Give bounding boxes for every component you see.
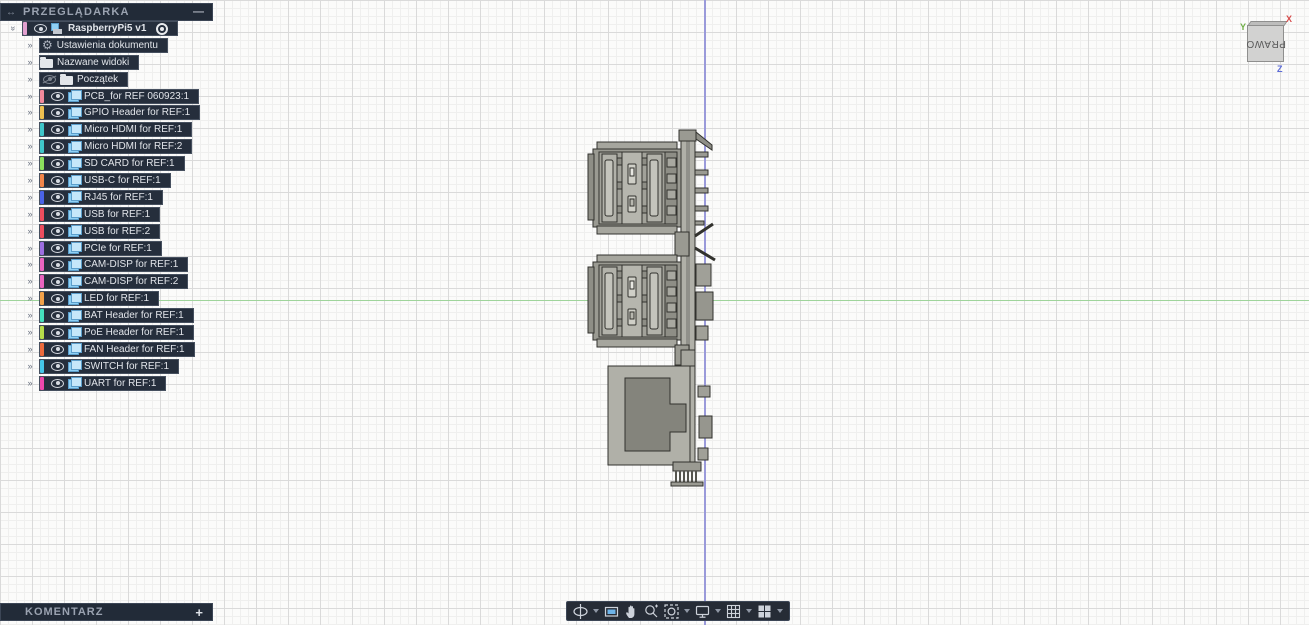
axis-z-label: Z xyxy=(1277,64,1283,74)
body-cube-icon xyxy=(68,310,80,322)
color-strip xyxy=(40,275,44,288)
browser-item-component[interactable]: » USB for REF:2 xyxy=(0,224,240,239)
browser-item-component[interactable]: » CAM-DISP for REF:1 xyxy=(0,257,240,272)
body-cube-icon xyxy=(68,327,80,339)
color-strip xyxy=(40,377,44,390)
browser-item-component[interactable]: » PCIe for REF:1 xyxy=(0,241,240,256)
expand-chevron-icon[interactable]: » xyxy=(25,291,35,306)
browser-item-document-settings[interactable]: » ⚙ Ustawienia dokumentu xyxy=(0,38,240,53)
fit-button[interactable] xyxy=(662,602,681,620)
expand-chevron-icon[interactable]: » xyxy=(6,24,21,34)
color-strip xyxy=(40,242,44,255)
visibility-eye-icon[interactable] xyxy=(51,227,64,236)
browser-item-origin[interactable]: » Początek xyxy=(0,72,240,87)
expand-chevron-icon[interactable]: » xyxy=(25,342,35,357)
visibility-eye-icon[interactable] xyxy=(51,125,64,134)
visibility-eye-icon[interactable] xyxy=(51,108,64,117)
visibility-eye-off-icon[interactable] xyxy=(43,75,56,84)
color-strip xyxy=(40,343,44,356)
browser-item-component[interactable]: » USB-C for REF:1 xyxy=(0,173,240,188)
body-cube-icon xyxy=(68,343,80,355)
body-cube-icon xyxy=(68,259,80,271)
browser-item-component[interactable]: » LED for REF:1 xyxy=(0,291,240,306)
browser-item-component[interactable]: » SWITCH for REF:1 xyxy=(0,359,240,374)
browser-item-component[interactable]: » Micro HDMI for REF:2 xyxy=(0,139,240,154)
root-label: RaspberryPi5 v1 xyxy=(68,23,146,34)
expand-chevron-icon[interactable]: » xyxy=(25,122,35,137)
pan-button[interactable] xyxy=(622,602,641,620)
body-cube-icon xyxy=(68,158,80,170)
browser-panel-title: PRZEGLĄDARKA xyxy=(23,6,130,18)
color-strip xyxy=(40,123,44,136)
color-strip xyxy=(40,225,44,238)
axis-y-label: Y xyxy=(1240,22,1246,32)
assembly-icon xyxy=(51,23,64,35)
visibility-eye-icon[interactable] xyxy=(51,176,64,185)
dock-panel-icon[interactable]: ↔ xyxy=(6,7,16,18)
expand-chevron-icon[interactable]: » xyxy=(25,274,35,289)
expand-chevron-icon[interactable]: » xyxy=(25,224,35,239)
color-strip xyxy=(40,90,44,103)
body-cube-icon xyxy=(68,377,80,389)
orbit-dropdown-caret[interactable] xyxy=(593,609,599,613)
visibility-eye-icon[interactable] xyxy=(51,345,64,354)
visibility-eye-icon[interactable] xyxy=(51,142,64,151)
expand-chevron-icon[interactable]: » xyxy=(25,72,35,87)
visibility-eye-icon[interactable] xyxy=(34,24,47,33)
body-cube-icon xyxy=(68,141,80,153)
body-cube-icon xyxy=(68,360,80,372)
browser-item-component[interactable]: » CAM-DISP for REF:2 xyxy=(0,274,240,289)
look-at-button[interactable] xyxy=(602,602,621,620)
visibility-eye-icon[interactable] xyxy=(51,311,64,320)
color-strip xyxy=(40,309,44,322)
color-strip xyxy=(40,106,44,119)
body-cube-icon xyxy=(68,90,80,102)
visibility-eye-icon[interactable] xyxy=(51,328,64,337)
browser-item-component[interactable]: » UART for REF:1 xyxy=(0,376,240,391)
viewcube-front-face[interactable]: PRAWO xyxy=(1247,25,1284,62)
color-strip xyxy=(40,360,44,373)
expand-chevron-icon[interactable]: » xyxy=(25,325,35,340)
display-settings-button[interactable] xyxy=(693,602,712,620)
visibility-eye-icon[interactable] xyxy=(51,210,64,219)
visibility-eye-icon[interactable] xyxy=(51,159,64,168)
comment-panel-header[interactable]: KOMENTARZ + xyxy=(0,603,213,621)
activate-component-radio-icon[interactable] xyxy=(156,23,168,35)
expand-chevron-icon[interactable]: » xyxy=(25,207,35,222)
visibility-eye-icon[interactable] xyxy=(51,193,64,202)
visibility-eye-icon[interactable] xyxy=(51,260,64,269)
visibility-eye-icon[interactable] xyxy=(51,244,64,253)
browser-item-component[interactable]: » FAN Header for REF:1 xyxy=(0,342,240,357)
body-cube-icon xyxy=(68,124,80,136)
browser-item-component[interactable]: » USB for REF:1 xyxy=(0,207,240,222)
viewports-button[interactable] xyxy=(755,602,774,620)
comment-panel-title: KOMENTARZ xyxy=(25,606,103,618)
browser-tree: » RaspberryPi5 v1 » ⚙ Ustawienia dokumen… xyxy=(0,21,240,391)
expand-chevron-icon[interactable]: » xyxy=(25,376,35,391)
expand-chevron-icon[interactable]: » xyxy=(25,55,35,70)
raspberry-pi-model[interactable] xyxy=(585,124,719,496)
folder-icon xyxy=(40,59,53,68)
expand-chevron-icon[interactable]: » xyxy=(25,308,35,323)
fit-dropdown-caret[interactable] xyxy=(684,609,690,613)
color-strip xyxy=(40,208,44,221)
display-settings-dropdown-caret[interactable] xyxy=(715,609,721,613)
expand-chevron-icon[interactable]: » xyxy=(25,359,35,374)
viewcube[interactable]: PRAWO Y X Z xyxy=(1240,14,1300,76)
body-cube-icon xyxy=(68,175,80,187)
expand-chevron-icon[interactable]: » xyxy=(25,241,35,256)
navigation-toolbar xyxy=(566,601,790,621)
browser-item-component[interactable]: » GPIO Header for REF:1 xyxy=(0,105,240,120)
browser-item-root[interactable]: » RaspberryPi5 v1 xyxy=(0,21,240,36)
expand-chevron-icon[interactable]: » xyxy=(25,257,35,272)
visibility-eye-icon[interactable] xyxy=(51,294,64,303)
color-strip xyxy=(40,326,44,339)
visibility-eye-icon[interactable] xyxy=(51,362,64,371)
expand-chevron-icon[interactable]: » xyxy=(25,38,35,53)
minimize-panel-button[interactable]: — xyxy=(193,6,204,18)
folder-icon xyxy=(60,76,73,85)
color-strip xyxy=(40,191,44,204)
gear-icon: ⚙ xyxy=(42,39,53,52)
axis-x-label: X xyxy=(1286,14,1292,24)
body-cube-icon xyxy=(68,276,80,288)
grid-dropdown-caret[interactable] xyxy=(746,609,752,613)
add-comment-button[interactable]: + xyxy=(195,605,203,620)
body-cube-icon xyxy=(68,225,80,237)
browser-item-named-views[interactable]: » Nazwane widoki xyxy=(0,55,240,70)
browser-item-component[interactable]: » PoE Header for REF:1 xyxy=(0,325,240,340)
browser-item-component[interactable]: » PCB_for REF 060923:1 xyxy=(0,89,240,104)
body-cube-icon xyxy=(68,191,80,203)
expand-chevron-icon[interactable]: » xyxy=(25,105,35,120)
body-cube-icon xyxy=(68,208,80,220)
orbit-button[interactable] xyxy=(571,602,590,620)
viewcube-face-label: PRAWO xyxy=(1246,38,1286,49)
expand-chevron-icon[interactable]: » xyxy=(25,190,35,205)
zoom-button[interactable] xyxy=(642,602,661,620)
color-strip xyxy=(40,157,44,170)
browser-item-component[interactable]: » SD CARD for REF:1 xyxy=(0,156,240,171)
grid-and-snaps-button[interactable] xyxy=(724,602,743,620)
expand-chevron-icon[interactable]: » xyxy=(25,173,35,188)
visibility-eye-icon[interactable] xyxy=(51,277,64,286)
color-strip xyxy=(40,292,44,305)
color-strip xyxy=(40,140,44,153)
color-strip xyxy=(40,258,44,271)
browser-item-component[interactable]: » BAT Header for REF:1 xyxy=(0,308,240,323)
body-cube-icon xyxy=(68,293,80,305)
color-strip xyxy=(23,22,27,35)
body-cube-icon xyxy=(68,242,80,254)
browser-panel-header[interactable]: ↔ PRZEGLĄDARKA — xyxy=(0,3,213,21)
expand-chevron-icon[interactable]: » xyxy=(25,89,35,104)
viewports-dropdown-caret[interactable] xyxy=(777,609,783,613)
browser-item-component[interactable]: » RJ45 for REF:1 xyxy=(0,190,240,205)
body-cube-icon xyxy=(68,107,80,119)
browser-item-component[interactable]: » Micro HDMI for REF:1 xyxy=(0,122,240,137)
color-strip xyxy=(40,174,44,187)
visibility-eye-icon[interactable] xyxy=(51,379,64,388)
visibility-eye-icon[interactable] xyxy=(51,92,64,101)
expand-chevron-icon[interactable]: » xyxy=(25,139,35,154)
expand-chevron-icon[interactable]: » xyxy=(25,156,35,171)
